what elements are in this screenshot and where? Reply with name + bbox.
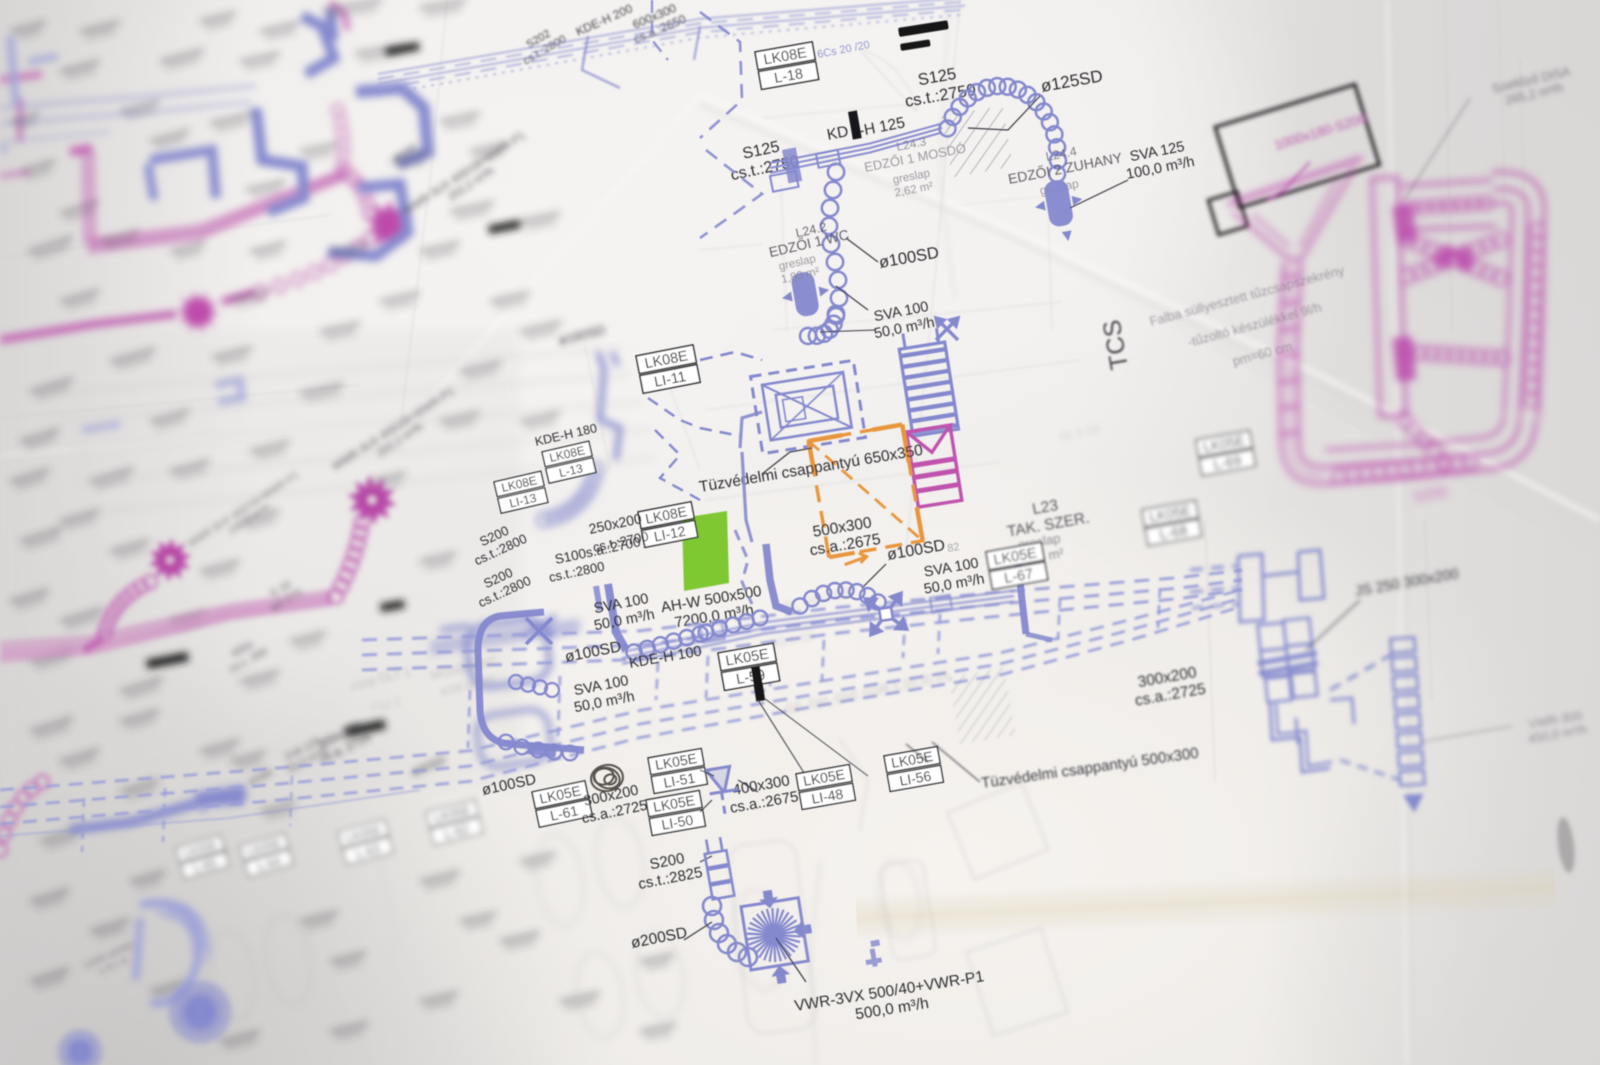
svg-text:82: 82 bbox=[946, 541, 960, 555]
